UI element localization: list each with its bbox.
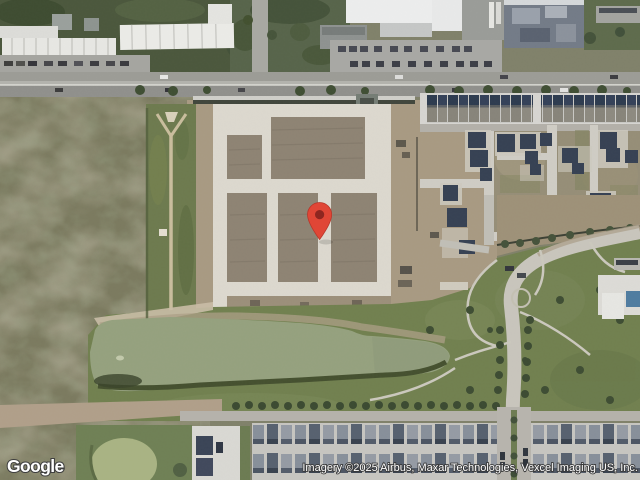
svg-text:Google: Google <box>7 456 65 476</box>
svg-text:Imagery ©2025 Airbus, Maxar Te: Imagery ©2025 Airbus, Maxar Technologies… <box>302 462 638 474</box>
